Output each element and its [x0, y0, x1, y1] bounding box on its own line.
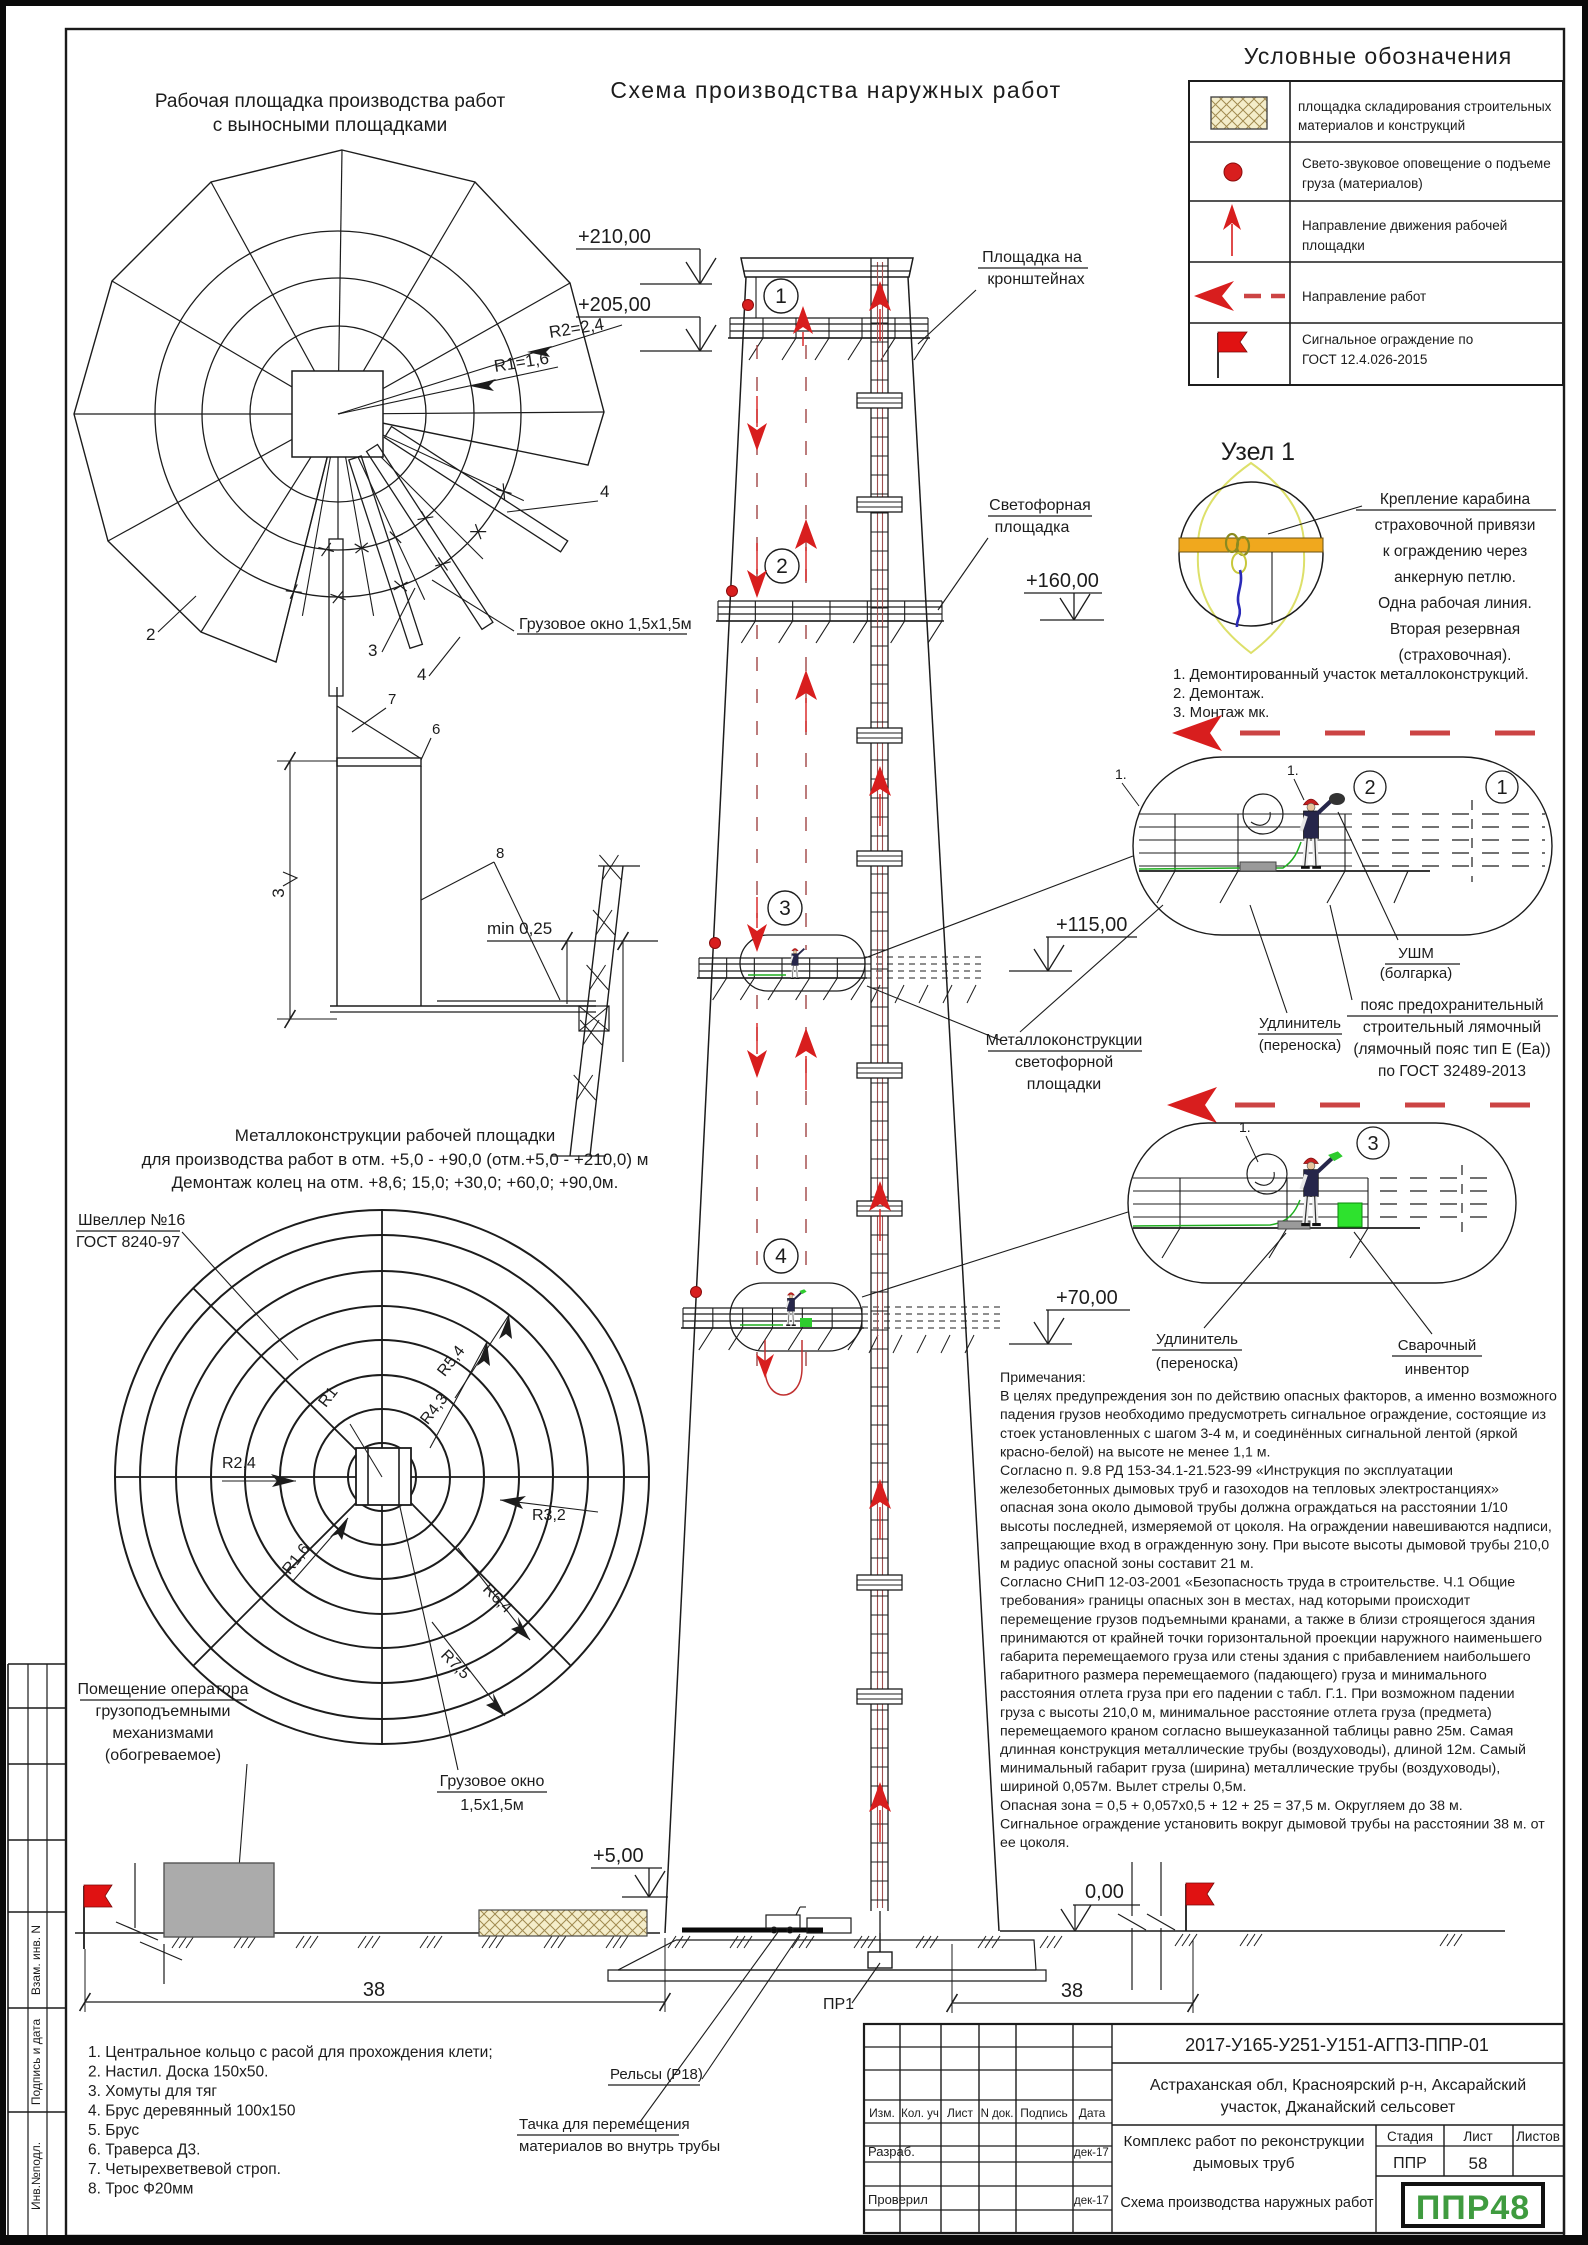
svg-text:8: 8	[496, 845, 504, 862]
svg-text:габарита перемещаемого груза и: габарита перемещаемого груза или стены з…	[1000, 1649, 1531, 1665]
svg-text:4: 4	[417, 665, 426, 684]
svg-text:ППР: ППР	[1393, 2155, 1427, 2172]
svg-text:(лямочный пояс тип Е (Еа)): (лямочный пояс тип Е (Еа))	[1353, 1041, 1550, 1058]
svg-text:запрещающие вход в огражденную: запрещающие вход в огражденную зону. При…	[1000, 1537, 1549, 1553]
svg-text:принимаются от крайней точки г: принимаются от крайней точки горизонталь…	[1000, 1630, 1542, 1646]
svg-text:высоты последней, измеряемой о: высоты последней, измеряемой от цоколя. …	[1000, 1519, 1552, 1535]
svg-text:требования» границы опасных зо: требования» границы опасных зон в местах…	[1000, 1593, 1471, 1609]
svg-text:Подпись и дата: Подпись и дата	[29, 2019, 43, 2106]
svg-text:Удлинитель: Удлинитель	[1156, 1331, 1238, 1348]
svg-text:длинная конструкция металличес: длинная конструкция металлические трубы …	[1000, 1742, 1526, 1758]
svg-text:1.: 1.	[1287, 762, 1299, 778]
svg-text:Взам. инв. N: Взам. инв. N	[29, 1925, 43, 1995]
svg-text:Сигнальное ограждение установи: Сигнальное ограждение установить вокруг …	[1000, 1816, 1545, 1832]
svg-text:Одна рабочая линия.: Одна рабочая линия.	[1378, 595, 1532, 612]
svg-text:Удлинитель: Удлинитель	[1259, 1015, 1341, 1032]
svg-text:пояс предохранительный: пояс предохранительный	[1361, 997, 1544, 1014]
svg-text:Изм.: Изм.	[869, 2106, 895, 2120]
svg-text:Листов: Листов	[1516, 2129, 1560, 2144]
svg-text:В целях предупреждения зон по: В целях предупреждения зон по действию о…	[1000, 1389, 1557, 1405]
svg-text:+70,00: +70,00	[1056, 1287, 1118, 1309]
svg-text:4: 4	[775, 1245, 787, 1268]
svg-text:R2,4: R2,4	[222, 1455, 256, 1472]
svg-text:Схема производства наружных ра: Схема производства наружных работ	[610, 77, 1061, 103]
svg-text:Крепление карабина: Крепление карабина	[1380, 491, 1531, 508]
svg-text:Условные обозначения: Условные обозначения	[1244, 43, 1513, 69]
svg-text:Помещение оператора: Помещение оператора	[77, 1681, 248, 1698]
svg-text:Рельсы (Р18): Рельсы (Р18)	[610, 2066, 703, 2083]
svg-text:3. Хомуты для тяг: 3. Хомуты для тяг	[88, 2083, 217, 2100]
svg-text:N док.: N док.	[981, 2108, 1014, 2120]
svg-text:светофорной: светофорной	[1015, 1054, 1113, 1071]
svg-text:для производства работ в отм.: для производства работ в отм. +5,0 - +90…	[142, 1150, 649, 1169]
svg-text:3: 3	[1367, 1133, 1378, 1155]
svg-text:2: 2	[146, 625, 155, 644]
svg-text:участок, Джанайский сельсовет: участок, Джанайский сельсовет	[1221, 2099, 1456, 2116]
svg-text:38: 38	[1061, 1980, 1083, 2002]
svg-text:Кол. уч: Кол. уч	[901, 2108, 939, 2120]
svg-text:58: 58	[1469, 2154, 1488, 2173]
svg-text:(страховочная).: (страховочная).	[1399, 647, 1512, 664]
svg-text:Сварочный: Сварочный	[1398, 1337, 1477, 1354]
svg-text:Свето-звуковое оповещение о по: Свето-звуковое оповещение о подъеме	[1302, 156, 1551, 171]
svg-text:Тачка для перемещения: Тачка для перемещения	[519, 2116, 690, 2133]
svg-text:4: 4	[600, 482, 609, 501]
svg-text:Швеллер №16: Швеллер №16	[78, 1212, 185, 1229]
svg-text:стоек установленных с шагом 3-: стоек установленных с шагом 3-4 м, и сое…	[1000, 1426, 1518, 1442]
svg-text:габаритного размера перемещаем: габаритного размера перемещаемого (падаю…	[1000, 1668, 1487, 1684]
svg-text:Рабочая площадка производства: Рабочая площадка производства работ	[155, 91, 506, 112]
svg-text:Проверил: Проверил	[868, 2192, 928, 2207]
svg-text:Схема производства наружных ра: Схема производства наружных работ	[1120, 2195, 1374, 2211]
svg-text:Демонтаж колец на отм. +8,6; 1: Демонтаж колец на отм. +8,6; 15,0; +30,0…	[172, 1173, 619, 1192]
svg-text:(переноска): (переноска)	[1156, 1355, 1239, 1372]
svg-text:механизмами: механизмами	[112, 1725, 213, 1742]
svg-text:1.: 1.	[1115, 766, 1127, 782]
svg-text:Направление работ: Направление работ	[1302, 289, 1426, 304]
svg-text:Лист: Лист	[1463, 2129, 1492, 2144]
svg-text:2: 2	[1364, 777, 1375, 799]
svg-text:(болгарка): (болгарка)	[1380, 965, 1452, 982]
svg-text:3: 3	[269, 888, 288, 897]
svg-text:площадка складирования строите: площадка складирования строительных	[1298, 99, 1552, 114]
svg-text:+5,00: +5,00	[593, 1845, 644, 1867]
svg-text:Металлоконструкции рабочей пло: Металлоконструкции рабочей площадки	[235, 1126, 556, 1145]
svg-text:2. Настил. Доска 150х50.: 2. Настил. Доска 150х50.	[88, 2064, 268, 2081]
svg-text:38: 38	[363, 1979, 385, 2001]
svg-text:2. Демонтаж.: 2. Демонтаж.	[1173, 685, 1264, 702]
svg-text:4. Брус деревянный 100х150: 4. Брус деревянный 100х150	[88, 2103, 296, 2120]
svg-text:Лист: Лист	[947, 2106, 974, 2120]
svg-text:Стадия: Стадия	[1387, 2129, 1433, 2144]
svg-text:Металлоконструкции: Металлоконструкции	[986, 1032, 1143, 1049]
svg-text:ГОСТ 12.4.026-2015: ГОСТ 12.4.026-2015	[1302, 352, 1427, 367]
svg-text:+205,00: +205,00	[578, 294, 651, 316]
svg-text:УШМ: УШМ	[1398, 945, 1434, 962]
svg-text:м радиус опасной зоны составит: м радиус опасной зоны составит 21 м.	[1000, 1556, 1254, 1572]
svg-text:1,5х1,5м: 1,5х1,5м	[460, 1797, 523, 1814]
svg-text:с выносными площадками: с выносными площадками	[213, 115, 448, 136]
svg-text:минимальный габарит груза (шир: минимальный габарит груза (ширина) метал…	[1000, 1761, 1500, 1777]
svg-text:Дата: Дата	[1079, 2106, 1106, 2120]
svg-text:3. Монтаж мк.: 3. Монтаж мк.	[1173, 704, 1269, 721]
svg-text:площадки: площадки	[1027, 1076, 1101, 1093]
svg-text:площадка: площадка	[995, 519, 1070, 536]
svg-text:5. Брус: 5. Брус	[88, 2122, 139, 2139]
svg-text:груза (материалов): груза (материалов)	[1302, 176, 1423, 191]
svg-text:+115,00: +115,00	[1056, 914, 1127, 936]
svg-text:(переноска): (переноска)	[1259, 1037, 1342, 1054]
svg-text:1: 1	[1496, 777, 1507, 799]
svg-text:перемещаемого краном согласно: перемещаемого краном согласно вышеуказан…	[1000, 1723, 1513, 1739]
svg-text:инвентор: инвентор	[1405, 1361, 1469, 1378]
svg-text:Инв.№подл.: Инв.№подл.	[29, 2142, 43, 2210]
svg-text:min 0,25: min 0,25	[487, 919, 552, 938]
svg-text:ГОСТ 8240-97: ГОСТ 8240-97	[76, 1234, 180, 1251]
svg-text:шириной 0,057м. Вылет стрелы 0: шириной 0,057м. Вылет стрелы 0,5м.	[1000, 1779, 1246, 1795]
svg-text:R3,2: R3,2	[532, 1507, 566, 1524]
svg-text:Разраб.: Разраб.	[868, 2144, 915, 2159]
svg-text:железобетонных дымовых труб и: железобетонных дымовых труб и газоходов …	[1000, 1482, 1499, 1498]
svg-text:строительный лямочный: строительный лямочный	[1363, 1019, 1541, 1036]
svg-text:+210,00: +210,00	[578, 226, 651, 248]
svg-text:материалов и конструкций: материалов и конструкций	[1298, 118, 1465, 133]
svg-text:+160,00: +160,00	[1026, 570, 1099, 592]
svg-text:1. Демонтированный участок мет: 1. Демонтированный участок металлоконстр…	[1173, 666, 1529, 683]
svg-text:опасная зона около дымовой тру: опасная зона около дымовой трубы должна …	[1000, 1500, 1508, 1516]
svg-text:3: 3	[779, 897, 791, 920]
svg-text:(обогреваемое): (обогреваемое)	[105, 1747, 221, 1764]
svg-text:расстояния отлета груза при ег: расстояния отлета груза при его падении …	[1000, 1686, 1515, 1702]
svg-text:2017-У165-У251-У151-АГПЗ-ППР-0: 2017-У165-У251-У151-АГПЗ-ППР-01	[1185, 2035, 1489, 2055]
svg-text:красно-белой) на высоте не мен: красно-белой) на высоте не менее 1,1 м.	[1000, 1444, 1270, 1460]
svg-text:ППР48: ППР48	[1416, 2189, 1530, 2227]
svg-text:Вторая резервная: Вторая резервная	[1390, 621, 1520, 638]
svg-text:Узел 1: Узел 1	[1221, 438, 1295, 466]
svg-text:кронштейнах: кронштейнах	[987, 271, 1084, 288]
svg-text:Сигнальное ограждение по: Сигнальное ограждение по	[1302, 332, 1473, 347]
svg-text:6: 6	[432, 721, 440, 738]
svg-text:1.: 1.	[1239, 1119, 1251, 1135]
svg-text:Примечания:: Примечания:	[1000, 1370, 1086, 1386]
svg-text:площадки: площадки	[1302, 238, 1365, 253]
svg-text:8. Трос Ф20мм: 8. Трос Ф20мм	[88, 2181, 193, 2198]
svg-text:перемещение грузов подъемными: перемещение грузов подъемными кранами, а…	[1000, 1612, 1535, 1628]
svg-text:7. Четырехветвевой строп.: 7. Четырехветвевой строп.	[88, 2161, 281, 2178]
svg-text:анкерную петлю.: анкерную петлю.	[1394, 569, 1516, 586]
svg-text:Комплекс работ по реконструкци: Комплекс работ по реконструкции	[1124, 2133, 1365, 2150]
svg-text:Подпись: Подпись	[1020, 2106, 1068, 2120]
svg-text:2: 2	[776, 555, 788, 578]
svg-text:страховочной привязи: страховочной привязи	[1375, 517, 1536, 534]
svg-text:Астраханская обл, Красноярский: Астраханская обл, Красноярский р-н, Акса…	[1150, 2077, 1526, 2094]
svg-text:дек-17: дек-17	[1074, 2195, 1109, 2207]
svg-text:Опасная зона = 0,5 + 0,057х0,5: Опасная зона = 0,5 + 0,057х0,5 + 12 + 25…	[1000, 1798, 1463, 1814]
svg-text:Согласно п. 9.8 РД 153-34.1-21: Согласно п. 9.8 РД 153-34.1-21.523-99 «И…	[1000, 1463, 1453, 1479]
svg-text:1: 1	[775, 285, 787, 308]
svg-text:Грузовое окно: Грузовое окно	[440, 1773, 545, 1790]
svg-text:Светофорная: Светофорная	[989, 497, 1091, 514]
svg-text:Грузовое окно 1,5х1,5м: Грузовое окно 1,5х1,5м	[519, 616, 692, 633]
svg-text:6. Траверса Д3.: 6. Траверса Д3.	[88, 2142, 200, 2159]
svg-text:дек-17: дек-17	[1074, 2147, 1109, 2159]
svg-text:0,00: 0,00	[1085, 1881, 1124, 1903]
svg-text:Площадка на: Площадка на	[982, 249, 1082, 266]
svg-text:дымовых труб: дымовых труб	[1193, 2155, 1294, 2172]
svg-text:ПР1: ПР1	[823, 1996, 854, 2013]
svg-text:Направление движения рабочей: Направление движения рабочей	[1302, 218, 1507, 233]
svg-text:1. Центральное кольцо с расой: 1. Центральное кольцо с расой для прохож…	[88, 2044, 493, 2061]
svg-text:материалов во внутрь трубы: материалов во внутрь трубы	[519, 2138, 720, 2155]
svg-text:падения грузов необходимо пред: падения грузов необходимо предусмотреть …	[1000, 1407, 1546, 1423]
svg-text:3: 3	[368, 641, 377, 660]
svg-text:по ГОСТ 32489-2013: по ГОСТ 32489-2013	[1378, 1063, 1526, 1080]
svg-text:к ограждению через: к ограждению через	[1383, 543, 1528, 560]
svg-text:Согласно СНиП 12-03-2001 «Безо: Согласно СНиП 12-03-2001 «Безопасность т…	[1000, 1575, 1515, 1591]
svg-text:груза с высоты 210,0 м, минима: груза с высоты 210,0 м, минимальное расс…	[1000, 1705, 1492, 1721]
svg-text:7: 7	[388, 691, 396, 708]
svg-text:ее цоколя.: ее цоколя.	[1000, 1835, 1069, 1851]
svg-text:грузоподъемными: грузоподъемными	[96, 1703, 231, 1720]
